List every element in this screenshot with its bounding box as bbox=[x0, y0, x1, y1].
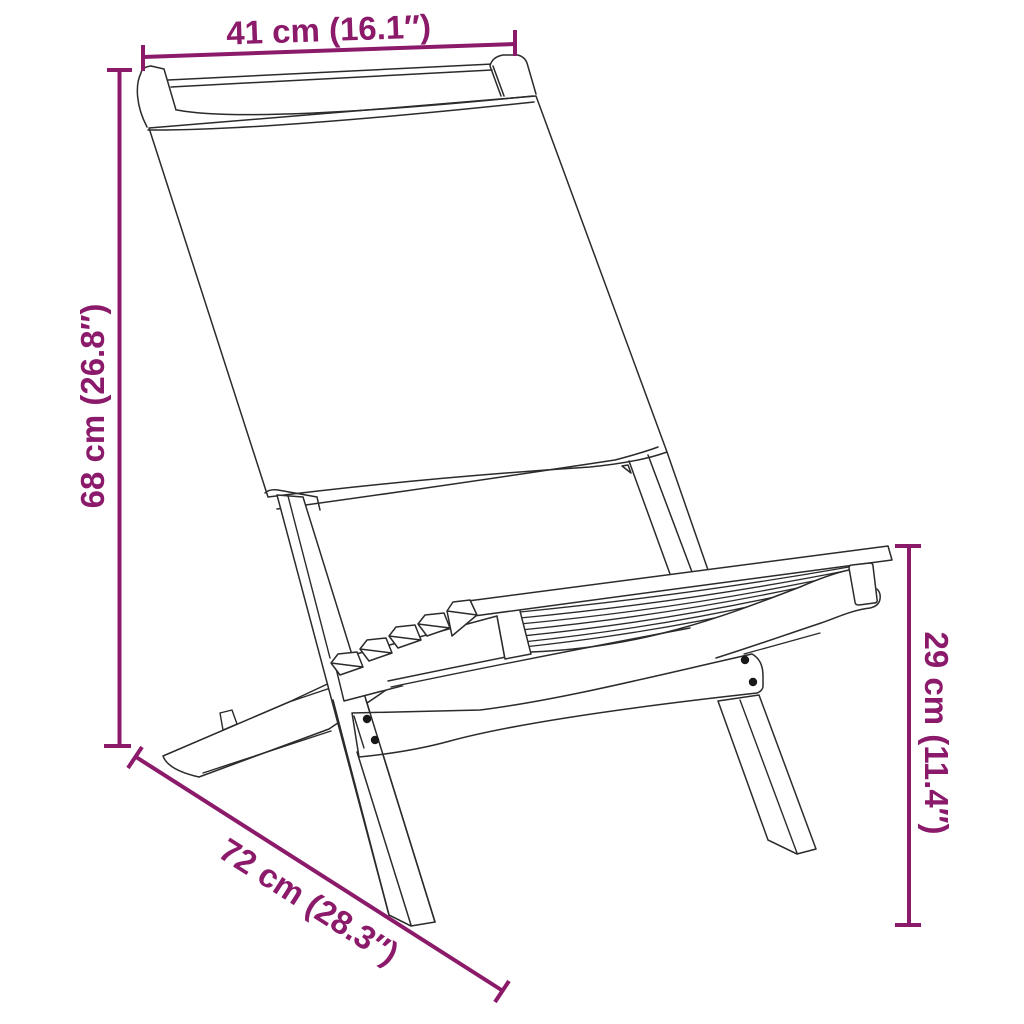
svg-text:68 cm (26.8″): 68 cm (26.8″) bbox=[74, 304, 111, 509]
svg-text:29 cm (11.4″): 29 cm (11.4″) bbox=[918, 632, 955, 835]
svg-text:41 cm (16.1″): 41 cm (16.1″) bbox=[226, 7, 432, 51]
